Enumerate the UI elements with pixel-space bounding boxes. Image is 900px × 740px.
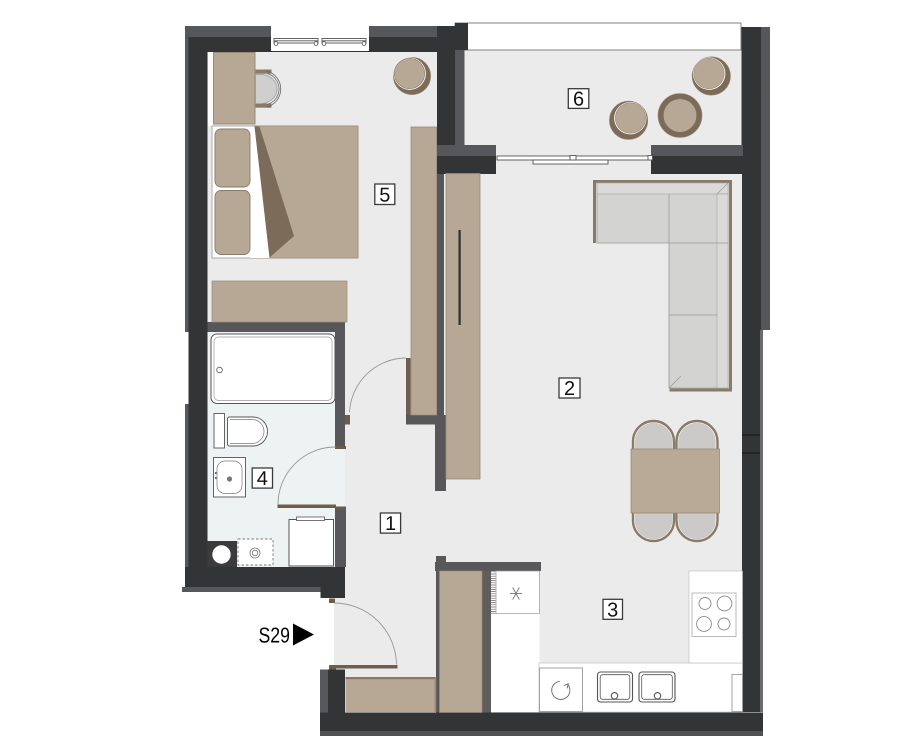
svg-text:1: 1 (385, 513, 396, 535)
svg-text:3: 3 (607, 599, 618, 621)
svg-text:2: 2 (564, 378, 575, 400)
svg-text:6: 6 (573, 89, 584, 111)
svg-text:5: 5 (379, 184, 390, 206)
svg-text:S29: S29 (259, 624, 291, 648)
svg-text:4: 4 (257, 468, 268, 490)
